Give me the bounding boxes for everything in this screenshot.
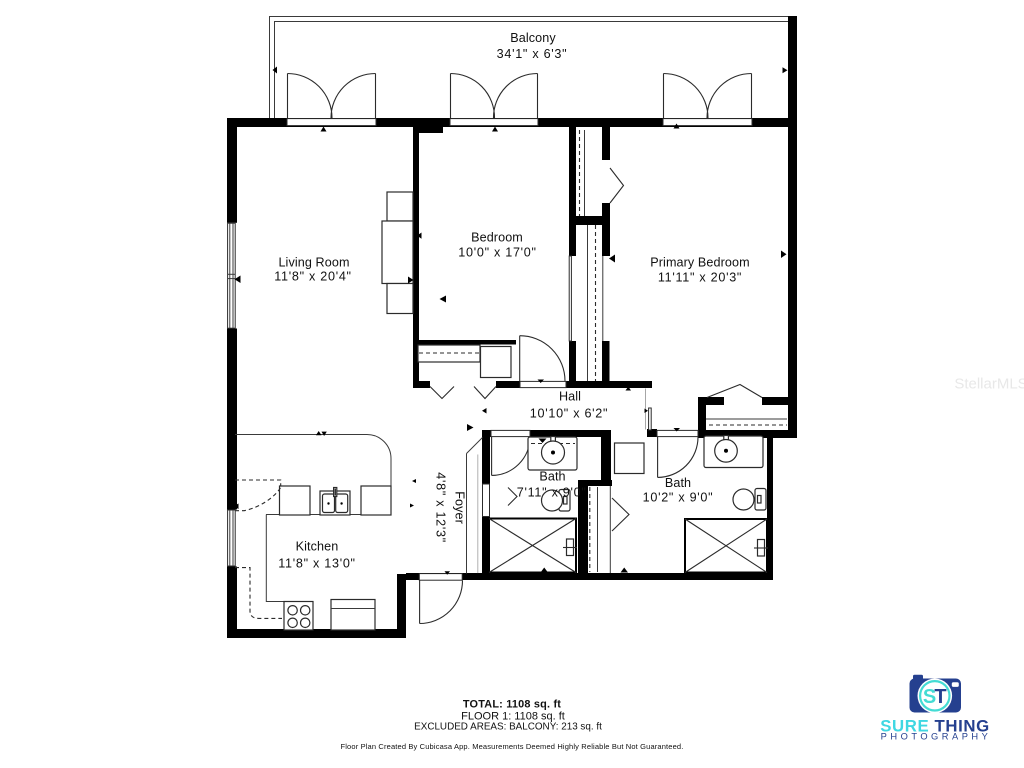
svg-text:EXCLUDED AREAS: BALCONY: 213 s: EXCLUDED AREAS: BALCONY: 213 sq. ft bbox=[414, 722, 602, 733]
svg-text:FLOOR 1: 1108 sq. ft: FLOOR 1: 1108 sq. ft bbox=[461, 710, 565, 722]
svg-text:10'0" x 17'0": 10'0" x 17'0" bbox=[458, 246, 536, 260]
svg-text:10'10" x 6'2": 10'10" x 6'2" bbox=[530, 407, 608, 421]
svg-text:T: T bbox=[934, 686, 946, 708]
svg-text:Kitchen: Kitchen bbox=[296, 540, 339, 554]
svg-text:Bath: Bath bbox=[539, 470, 565, 484]
svg-text:4'8" x 12'3": 4'8" x 12'3" bbox=[434, 472, 448, 543]
svg-text:Living Room: Living Room bbox=[278, 256, 349, 270]
svg-text:StellarMLS: StellarMLS bbox=[954, 376, 1024, 393]
svg-text:Bedroom: Bedroom bbox=[471, 231, 523, 245]
svg-text:7'11" x 9'0": 7'11" x 9'0" bbox=[517, 486, 587, 500]
svg-text:10'2" x 9'0": 10'2" x 9'0" bbox=[643, 491, 714, 505]
svg-text:TOTAL: 1108 sq. ft: TOTAL: 1108 sq. ft bbox=[463, 698, 561, 710]
svg-text:11'8" x 13'0": 11'8" x 13'0" bbox=[278, 557, 356, 571]
svg-text:11'11" x 20'3": 11'11" x 20'3" bbox=[658, 271, 742, 285]
svg-text:Bath: Bath bbox=[665, 476, 691, 490]
svg-text:Foyer: Foyer bbox=[453, 491, 467, 524]
svg-text:Floor Plan Created By Cubicasa: Floor Plan Created By Cubicasa App. Meas… bbox=[341, 742, 684, 751]
svg-text:34'1" x 6'3": 34'1" x 6'3" bbox=[497, 47, 568, 61]
svg-text:Hall: Hall bbox=[559, 390, 581, 404]
svg-text:11'8" x 20'4": 11'8" x 20'4" bbox=[274, 270, 352, 284]
svg-text:Balcony: Balcony bbox=[510, 31, 556, 45]
svg-text:PHOTOGRAPHY: PHOTOGRAPHY bbox=[881, 732, 992, 742]
svg-text:Primary Bedroom: Primary Bedroom bbox=[650, 256, 749, 270]
